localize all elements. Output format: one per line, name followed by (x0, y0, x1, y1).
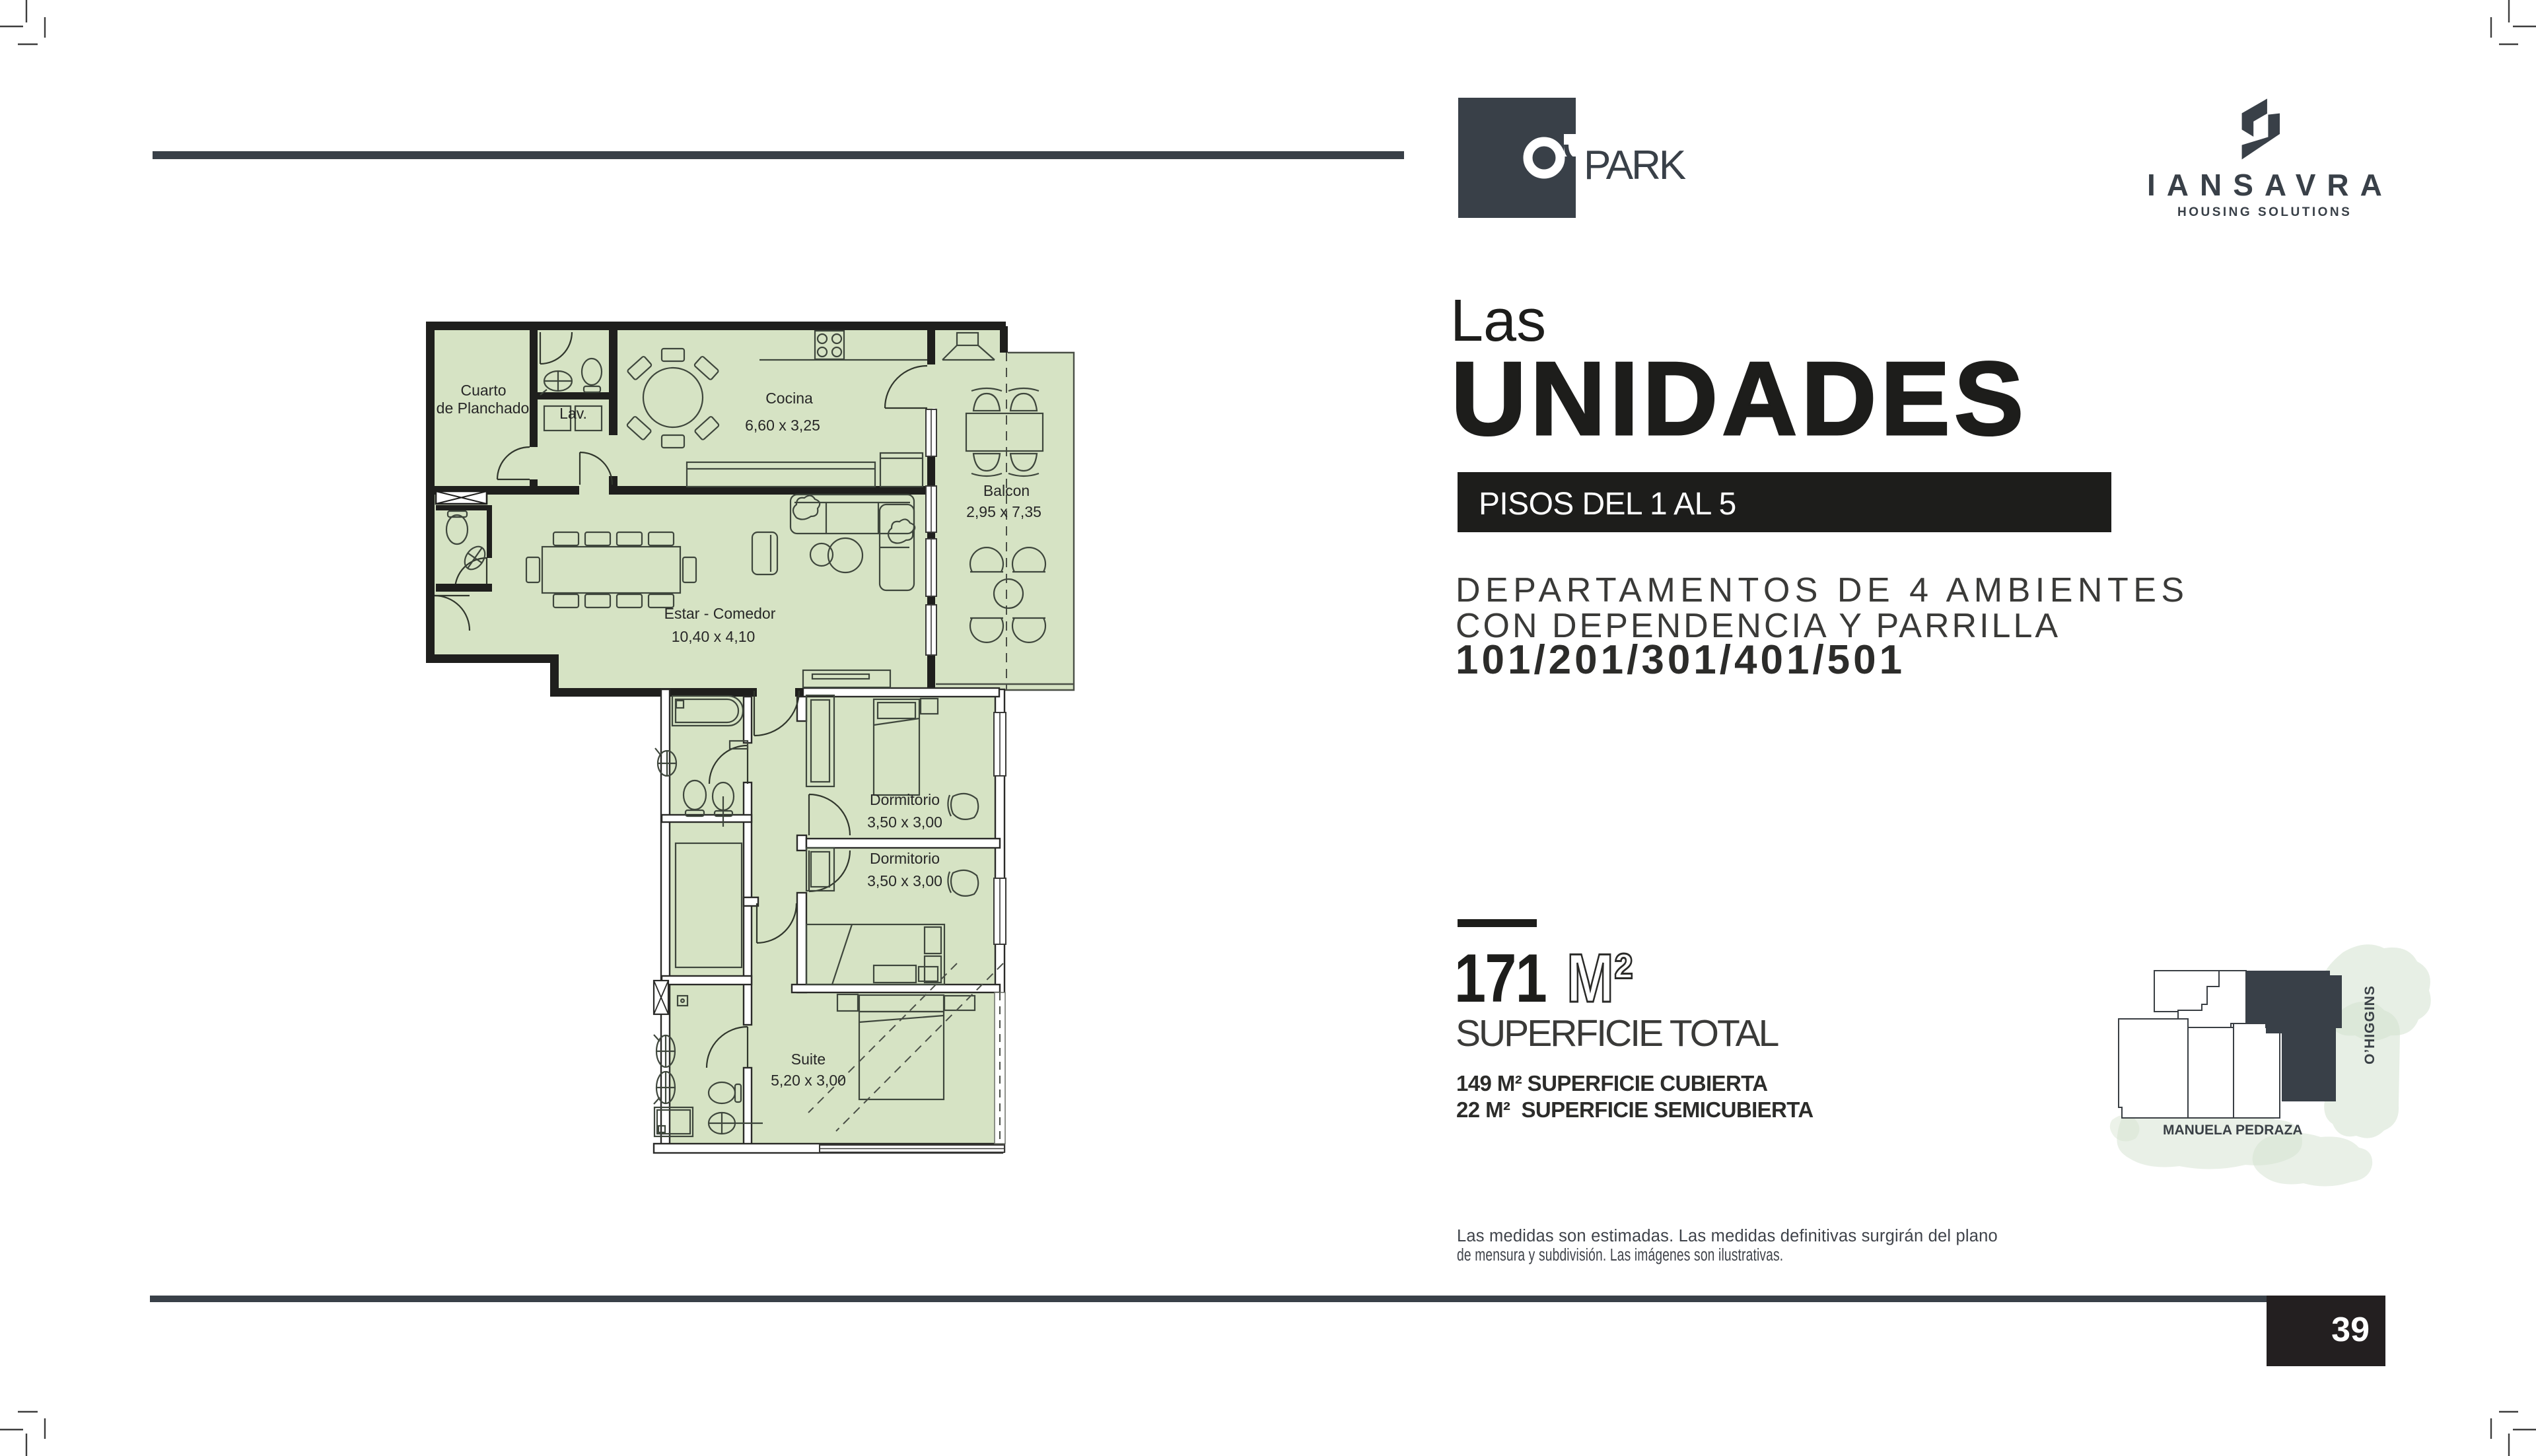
svg-text:Lav.: Lav. (559, 405, 587, 422)
svg-text:3,50 x 3,00: 3,50 x 3,00 (867, 872, 942, 889)
svg-text:Balcon: Balcon (983, 482, 1030, 499)
svg-text:Dormitorio: Dormitorio (870, 850, 940, 867)
svg-text:2,95 x 7,35: 2,95 x 7,35 (966, 503, 1041, 520)
svg-text:Cocina: Cocina (765, 390, 813, 407)
svg-text:Dormitorio: Dormitorio (870, 791, 940, 808)
svg-text:de Planchado: de Planchado (437, 399, 530, 417)
svg-text:5,20 x 3,00: 5,20 x 3,00 (771, 1072, 846, 1089)
svg-text:Estar - Comedor: Estar - Comedor (664, 605, 776, 622)
svg-text:Cuarto: Cuarto (460, 382, 506, 399)
svg-text:10,40 x 4,10: 10,40 x 4,10 (672, 628, 756, 645)
svg-text:3,50 x 3,00: 3,50 x 3,00 (867, 814, 942, 831)
svg-text:Suite: Suite (791, 1051, 826, 1068)
svg-text:6,60 x 3,25: 6,60 x 3,25 (745, 417, 820, 434)
